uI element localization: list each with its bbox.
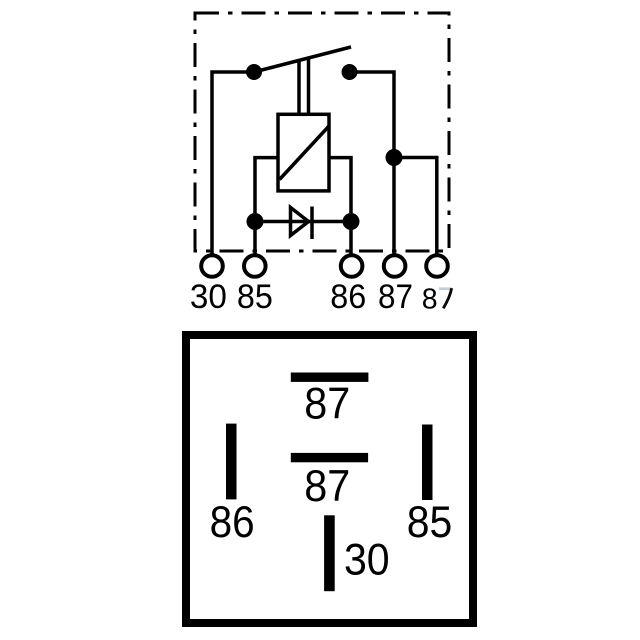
- svg-text:8: 8: [422, 283, 438, 315]
- svg-text:85: 85: [237, 278, 273, 316]
- svg-text:30: 30: [344, 536, 390, 585]
- svg-text:86: 86: [210, 498, 255, 547]
- svg-text:87: 87: [378, 278, 413, 316]
- svg-text:87: 87: [304, 462, 350, 511]
- svg-text:86: 86: [330, 278, 366, 316]
- svg-text:87: 87: [304, 380, 350, 429]
- svg-text:85: 85: [407, 498, 453, 547]
- svg-text:30: 30: [190, 278, 227, 316]
